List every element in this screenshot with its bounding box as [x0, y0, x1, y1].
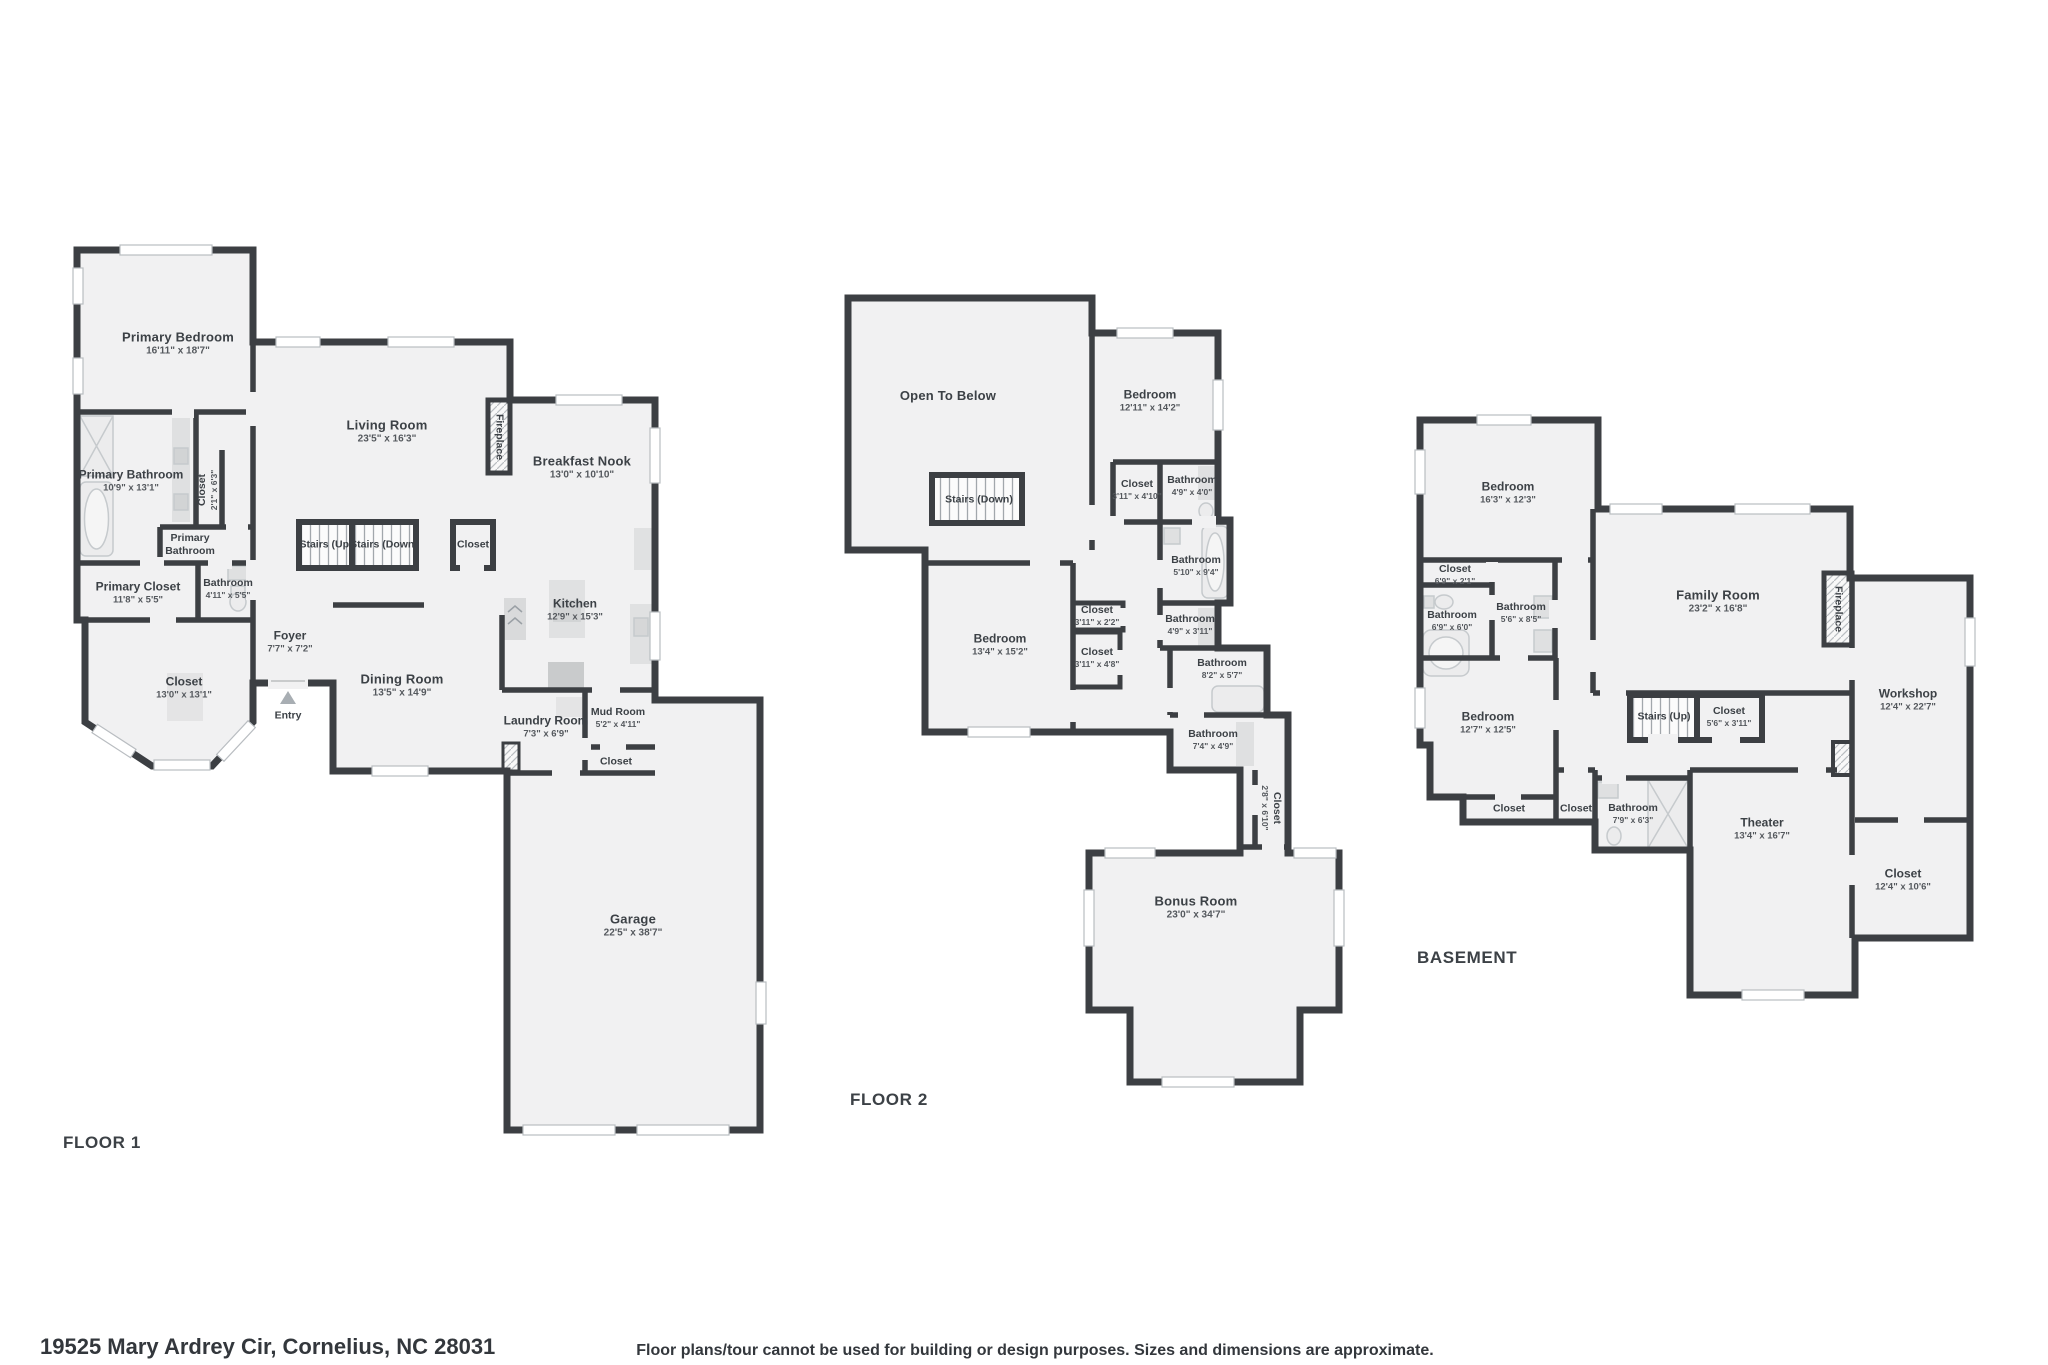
bathtub-icon [1212, 686, 1264, 712]
floor2-plan [848, 298, 1344, 1087]
room-label-theater: Theater13'4" x 16'7" [1734, 816, 1790, 843]
room-label-bathroom-2c: Bathroom4'9" x 3'11" [1165, 613, 1215, 637]
room-label-bedroom-ba: Bedroom16'3" x 12'3" [1480, 480, 1536, 507]
room-label-open-to-below: Open To Below [900, 388, 996, 404]
toilet-icon [1607, 827, 1621, 845]
room-label-mud-room: Mud Room5'2" x 4'11" [591, 706, 645, 730]
room-label-hall-closet: Closet [457, 538, 489, 551]
room-label-closet-bd: Closet [1560, 802, 1592, 815]
room-label-stairs-down-1: Stairs (Down) [350, 538, 418, 551]
room-label-kitchen: Kitchen12'9" x 15'3" [547, 597, 603, 624]
room-label-stairs-up-2: Stairs (Up) [1637, 710, 1690, 723]
property-address: 19525 Mary Ardrey Cir, Cornelius, NC 280… [40, 1334, 495, 1360]
room-label-mud-closet: Closet [600, 755, 632, 768]
room-label-bathroom-ba: Bathroom6'9" x 6'0" [1427, 609, 1477, 633]
room-label-closet-2a: Closet3'11" x 4'10" [1112, 478, 1161, 502]
room-label-bathroom-2d: Bathroom8'2" x 5'7" [1197, 657, 1247, 681]
room-label-closet-bb: Closet5'6" x 3'11" [1707, 705, 1752, 729]
entry-arrow-icon [280, 691, 296, 704]
floor1-title: FLOOR 1 [63, 1133, 141, 1153]
floor2-title: FLOOR 2 [850, 1090, 928, 1110]
room-label-primary-bathroom-small: Primary Bathroom [154, 532, 226, 558]
room-label-primary-bathroom: Primary Bathroom10'9" x 13'1" [79, 468, 184, 495]
room-label-fireplace-2: Fireplace [1831, 586, 1844, 632]
room-label-bathroom-1: Bathroom4'11" x 5'5" [203, 577, 253, 601]
room-label-bonus-room: Bonus Room23'0" x 34'7" [1155, 894, 1238, 923]
room-label-workshop: Workshop12'4" x 22'7" [1879, 687, 1937, 714]
room-label-entry: Entry [275, 709, 302, 722]
room-label-bedroom-2a: Bedroom12'11" x 14'2" [1120, 388, 1181, 415]
room-label-bedroom-2b: Bedroom13'4" x 15'2" [972, 632, 1028, 659]
room-label-closet-2c: Closet3'11" x 4'8" [1075, 646, 1120, 670]
floorplan-drawing [0, 0, 2048, 1365]
room-label-living-room: Living Room23'5" x 16'3" [347, 418, 428, 447]
room-label-laundry-room: Laundry Room7'3" x 6'9" [504, 714, 589, 741]
room-label-dining-room: Dining Room13'5" x 14'9" [360, 672, 443, 701]
room-label-closet-vertical-2: Closet2'8" x 6'10" [1259, 785, 1283, 830]
room-label-fireplace-1: Fireplace [492, 414, 505, 460]
floorplan-page: Primary Bedroom16'11" x 18'7" Living Roo… [0, 0, 2048, 1365]
room-label-closet-ba: Closet6'9" x 2'1" [1435, 563, 1475, 587]
room-label-bathroom-bc: Bathroom7'9" x 6'3" [1608, 802, 1658, 826]
room-label-bathroom-2e: Bathroom7'4" x 4'9" [1188, 728, 1238, 752]
room-label-garage: Garage22'5" x 38'7" [604, 912, 663, 941]
basement-title: BASEMENT [1417, 948, 1517, 968]
toilet-icon [1435, 595, 1453, 609]
room-label-stairs-down-2: Stairs (Down) [945, 493, 1013, 506]
stove-icon [548, 662, 584, 688]
room-label-closet-vertical-1: Closet2'1" x 6'3" [196, 470, 220, 510]
disclaimer-text: Floor plans/tour cannot be used for buil… [636, 1342, 1433, 1360]
room-label-bathroom-2b: Bathroom5'10" x 9'4" [1171, 554, 1221, 578]
room-label-primary-closet: Primary Closet11'8" x 5'5" [96, 580, 181, 607]
room-label-bathroom-2a: Bathroom4'9" x 4'0" [1167, 474, 1217, 498]
room-label-bathroom-bb: Bathroom5'6" x 8'5" [1496, 601, 1546, 625]
room-label-foyer: Foyer7'7" x 7'2" [267, 629, 312, 656]
room-label-primary-bedroom: Primary Bedroom16'11" x 18'7" [122, 330, 234, 359]
room-label-bedroom-bb: Bedroom12'7" x 12'5" [1460, 710, 1516, 737]
room-label-closet-bc: Closet [1493, 802, 1525, 815]
room-label-family-room: Family Room23'2" x 16'8" [1676, 588, 1760, 617]
room-label-closet-be: Closet12'4" x 10'6" [1875, 867, 1931, 894]
room-label-closet-2b: Closet3'11" x 2'2" [1075, 604, 1120, 628]
room-label-breakfast-nook: Breakfast Nook13'0" x 10'10" [533, 454, 631, 483]
room-label-bay-closet: Closet13'0" x 13'1" [156, 675, 212, 702]
room-label-stairs-up-1: Stairs (Up) [299, 538, 352, 551]
